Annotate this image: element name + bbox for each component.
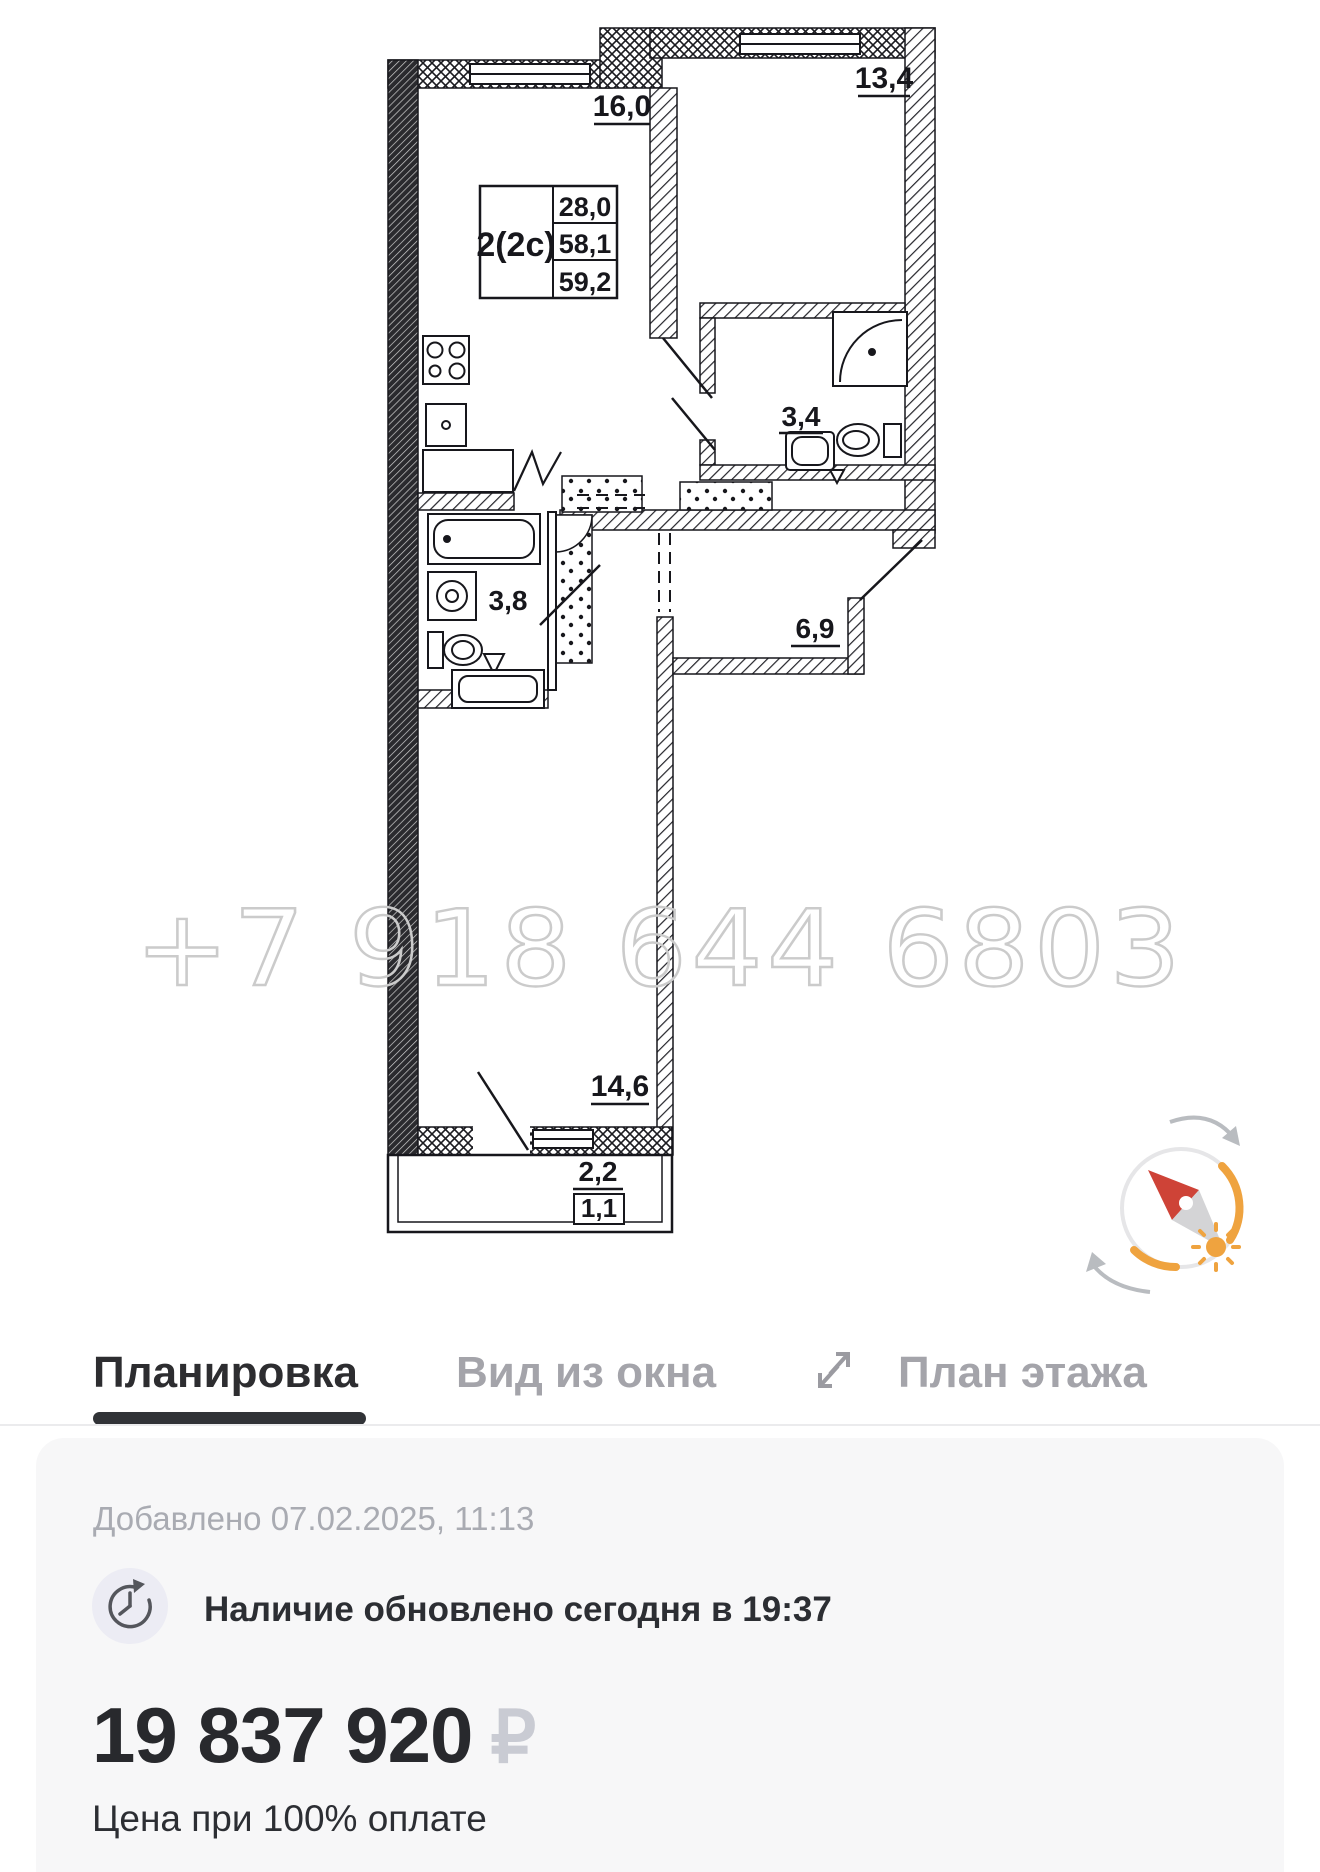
- area-bedroom: 13,4: [855, 62, 914, 95]
- price-value: 19 837 920: [92, 1691, 472, 1779]
- area-living: 14,6: [591, 1070, 649, 1103]
- kitchen-fixtures: [423, 336, 513, 492]
- watermark-phone: +7 918 644 6803: [135, 888, 1185, 1010]
- counter-icon: [423, 450, 513, 492]
- spec-type: 2(2с): [476, 226, 555, 264]
- availability-badge: [92, 1568, 168, 1644]
- spec-v1: 28,0: [559, 192, 612, 222]
- area-bath-small: 3,4: [782, 401, 821, 432]
- compass-icon: [1086, 1118, 1240, 1292]
- spec-v2: 58,1: [559, 229, 612, 259]
- clock-refresh-icon: [92, 1568, 168, 1644]
- added-date: Добавлено 07.02.2025, 11:13: [93, 1500, 534, 1538]
- area-kitchen: 16,0: [593, 90, 651, 123]
- bathroom-small-fixtures: [786, 312, 907, 483]
- tab-floor-plan[interactable]: План этажа: [898, 1348, 1147, 1398]
- tabs-divider: [0, 1424, 1320, 1426]
- washer-icon: [428, 572, 476, 620]
- sun-icon: [1193, 1224, 1239, 1270]
- toilet-icon: [444, 635, 482, 665]
- price-row: 19 837 920₽: [92, 1690, 536, 1781]
- listing-page: 2(2с) 28,0 58,1 59,2 16,0 13,4 3,4 3,8 6…: [0, 0, 1320, 1872]
- area-balcony: 2,2: [579, 1156, 618, 1187]
- toilet-tank-icon: [428, 632, 443, 668]
- area-hallway: 6,9: [796, 613, 835, 644]
- area-balcony-reduced: 1,1: [581, 1193, 617, 1223]
- kitchen-sink-icon: [426, 404, 466, 446]
- tab-window-view[interactable]: Вид из окна: [456, 1348, 716, 1398]
- price-note: Цена при 100% оплате: [92, 1798, 487, 1840]
- floor-plan-image[interactable]: 2(2с) 28,0 58,1 59,2 16,0 13,4 3,4 3,8 6…: [0, 0, 1320, 1340]
- plan-partition: [548, 512, 556, 690]
- area-bath: 3,8: [489, 585, 528, 616]
- balcony-outline: [388, 1155, 672, 1232]
- expand-icon[interactable]: [806, 1342, 862, 1398]
- ruble-sign: ₽: [490, 1698, 536, 1778]
- availability-text: Наличие обновлено сегодня в 19:37: [204, 1590, 832, 1630]
- tab-planning[interactable]: Планировка: [93, 1348, 358, 1398]
- spec-v3: 59,2: [559, 267, 612, 297]
